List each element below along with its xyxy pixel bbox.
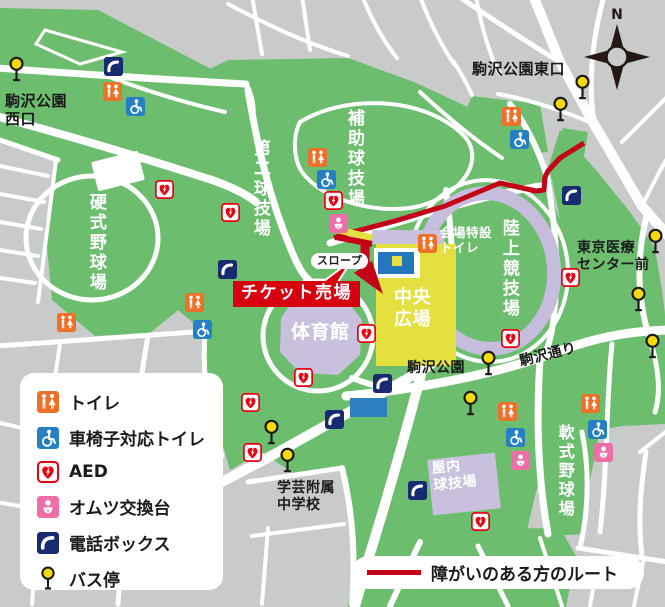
legend-item-bus: バス停	[36, 566, 211, 591]
central-plaza-area	[372, 230, 456, 366]
wheelchair-icon	[37, 427, 59, 449]
diaper-legend-icon	[36, 496, 60, 518]
route-legend-label: 障がいのある方のルート	[431, 560, 618, 585]
toilet-legend-icon	[36, 391, 60, 413]
stage-roof	[372, 230, 444, 244]
diaper-icon	[37, 496, 59, 518]
route-line-swatch	[367, 570, 421, 575]
route-legend: 障がいのある方のルート	[352, 556, 644, 589]
compass-n-label: N	[611, 7, 623, 23]
indoor-ballpark-building	[427, 453, 500, 516]
map-legend: トイレ 車椅子対応トイレ AED オムツ交換台 電話ボックス バス停	[20, 373, 223, 590]
legend-item-label: 電話ボックス	[69, 530, 171, 555]
toilet-icon	[37, 391, 59, 413]
legend-item-phone: 電話ボックス	[36, 530, 211, 555]
gymnasium-building	[280, 296, 362, 375]
legend-item-label: AED	[69, 462, 108, 482]
komazawa-park-map: N 駒沢公園 西口駒沢公園東口東京医療 センター前駒沢公園駒沢通り学芸附属 中学…	[0, 0, 665, 607]
bus-legend-icon	[36, 566, 60, 591]
school-grounds	[228, 466, 356, 607]
legend-item-label: バス停	[69, 566, 120, 591]
legend-item-label: トイレ	[69, 389, 120, 414]
phone-legend-icon	[36, 532, 60, 554]
aed-icon	[37, 461, 59, 483]
bus-stop-icon	[39, 566, 57, 591]
wheelchair-legend-icon	[36, 427, 60, 449]
legend-item-label: 車椅子対応トイレ	[69, 425, 205, 450]
stage-detail	[392, 256, 402, 266]
legend-item-diaper: オムツ交換台	[36, 494, 211, 519]
legend-item-label: オムツ交換台	[69, 494, 171, 519]
legend-item-wheelchair: 車椅子対応トイレ	[36, 425, 211, 450]
aed-legend-icon	[36, 461, 60, 483]
phone-icon	[37, 532, 59, 554]
legend-item-aed: AED	[36, 461, 211, 483]
legend-item-toilet: トイレ	[36, 389, 211, 414]
pond	[350, 398, 387, 417]
legend-list: トイレ 車椅子対応トイレ AED オムツ交換台 電話ボックス バス停	[36, 389, 211, 591]
